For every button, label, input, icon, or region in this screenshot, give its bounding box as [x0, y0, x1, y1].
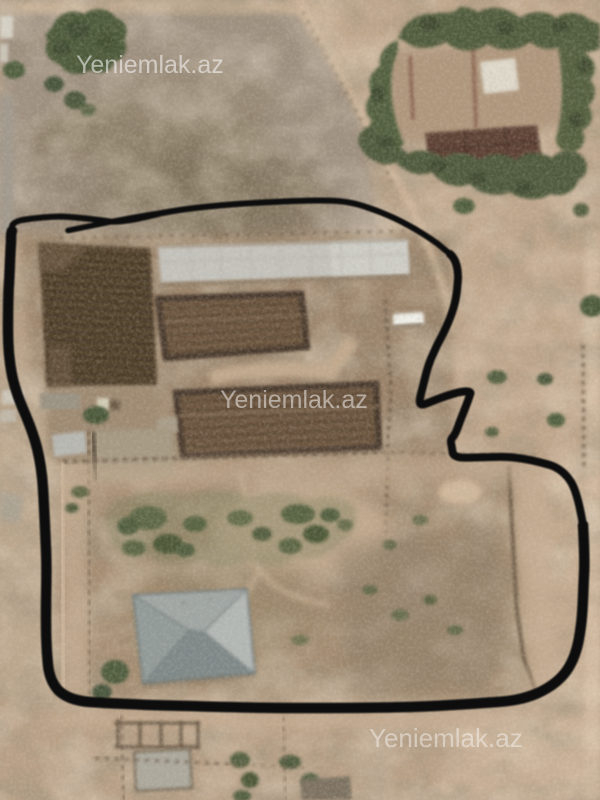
svg-text:Yeniemlak.az: Yeniemlak.az — [369, 723, 523, 753]
svg-text:Yeniemlak.az: Yeniemlak.az — [220, 386, 368, 414]
svg-text:Yeniemlak.az: Yeniemlak.az — [76, 51, 224, 79]
